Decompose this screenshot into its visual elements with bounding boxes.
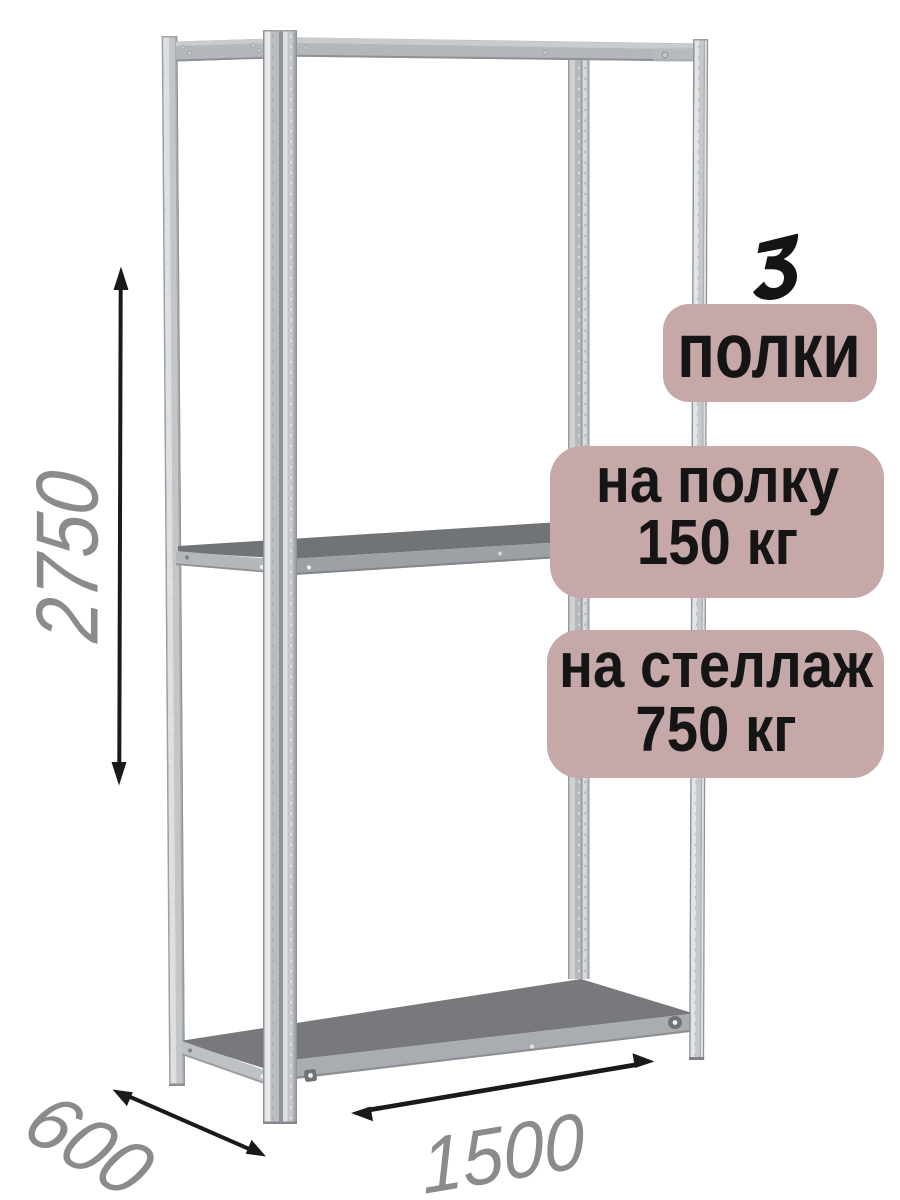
svg-text:полки: полки <box>677 306 860 393</box>
svg-text:на стеллаж: на стеллаж <box>559 629 874 701</box>
svg-text:2750: 2750 <box>19 467 117 646</box>
svg-text:750 кг: 750 кг <box>635 693 796 765</box>
svg-text:150 кг: 150 кг <box>637 506 798 578</box>
